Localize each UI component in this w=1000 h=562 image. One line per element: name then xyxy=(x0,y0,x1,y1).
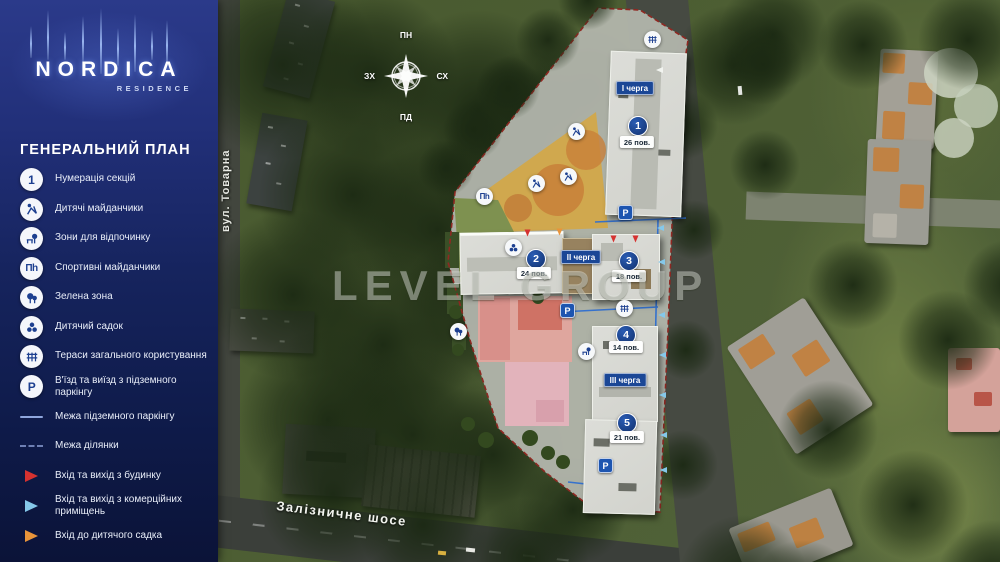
logo-light-streak xyxy=(30,26,32,58)
map-green-zone-icon xyxy=(450,323,467,340)
parking-icon: P xyxy=(20,375,43,398)
legend-label: Зелена зона xyxy=(55,291,113,303)
entrance-arrow-red xyxy=(525,229,531,236)
play-zone-orange xyxy=(504,194,532,222)
legend-label: Вхід до дитячого садка xyxy=(55,530,162,542)
brand-name: NORDICA xyxy=(0,58,218,82)
logo-light-streak xyxy=(47,10,49,60)
legend-item: Вхід до дитячого садка xyxy=(20,525,208,548)
legend-item: Зони для відпочинку xyxy=(20,227,208,250)
legend-label: Дитячі майданчики xyxy=(55,203,143,215)
entrance-arrow-red-icon xyxy=(20,464,43,487)
entrance-arrow-red xyxy=(633,235,639,242)
logo-light-streak xyxy=(64,32,66,60)
parking-entrance-marker: P xyxy=(618,205,633,220)
street-label-tovarna: вул. Товарна xyxy=(220,112,240,232)
green-zone-icon xyxy=(20,286,43,309)
legend-item: Вхід та вихід з будинку xyxy=(20,464,208,487)
legend-label: Вхід та вихід з будинку xyxy=(55,470,161,482)
entrance-arrow-white xyxy=(656,67,663,73)
site-boundary-line-icon xyxy=(20,435,43,458)
section-1-building xyxy=(605,51,687,218)
legend-item: 1Нумерація секцій xyxy=(20,168,208,191)
legend-label: Нумерація секцій xyxy=(55,173,135,185)
legend-label: Дитячий садок xyxy=(55,321,123,333)
map-sports-ground-icon: Пh xyxy=(476,188,493,205)
legend-label: Тераси загального користування xyxy=(55,350,207,362)
brand-logo: NORDICA RESIDENCE xyxy=(0,24,218,108)
section-5-floors: 21 пов. xyxy=(610,431,644,443)
entrance-arrow-blue xyxy=(659,392,666,398)
entrance-arrow-orange xyxy=(557,228,563,235)
compass-star xyxy=(380,50,432,102)
compass-north: ПН xyxy=(400,30,412,40)
legend-item: Межа підземного паркінгу xyxy=(20,405,208,428)
legend-sidebar: NORDICA RESIDENCE ГЕНЕРАЛЬНИЙ ПЛАН 1Нуме… xyxy=(0,0,218,562)
compass-west: ЗХ xyxy=(364,71,375,81)
map-playground-icon xyxy=(528,175,545,192)
compass-rose: ПН СХ ПД ЗХ xyxy=(368,30,444,122)
page-title: ГЕНЕРАЛЬНИЙ ПЛАН xyxy=(20,142,218,158)
logo-light-streak xyxy=(151,30,153,60)
watermark: LEVEL GROUP xyxy=(332,262,709,310)
entrance-arrow-blue xyxy=(658,312,665,318)
entrance-arrow-red xyxy=(611,235,617,242)
legend-label: Зони для відпочинку xyxy=(55,232,150,244)
legend-item: Зелена зона xyxy=(20,286,208,309)
legend-item: Дитячі майданчики xyxy=(20,198,208,221)
section-1-floors: 26 пов. xyxy=(620,136,654,148)
section-1-number: 1 xyxy=(628,116,648,136)
play-zone-light-pink xyxy=(536,400,564,422)
entrance-arrow-blue xyxy=(659,352,666,358)
legend-item: Дитячий садок xyxy=(20,316,208,339)
section-5-number: 5 xyxy=(617,413,637,433)
sports-ground-icon: Пh xyxy=(20,257,43,280)
master-plan-map: вул. Товарна Залізничне шосе ПН СХ ПД ЗХ… xyxy=(218,0,1000,562)
legend-item: Вхід та вихід з комерційних приміщень xyxy=(20,494,208,518)
entrance-arrow-blue xyxy=(660,467,667,473)
map-terrace-icon xyxy=(644,31,661,48)
legend-item: Межа ділянки xyxy=(20,435,208,458)
legend-label: Вхід та вихід з комерційних приміщень xyxy=(55,494,208,518)
legend-item: ПhСпортивні майданчики xyxy=(20,257,208,280)
entrance-arrow-blue xyxy=(657,225,664,231)
kindergarten-icon xyxy=(20,316,43,339)
playground-icon xyxy=(20,198,43,221)
brand-subtitle: RESIDENCE xyxy=(117,84,192,93)
compass-south: ПД xyxy=(400,112,412,122)
legend-label: Межа підземного паркінгу xyxy=(55,411,174,423)
logo-light-streak xyxy=(82,16,84,62)
legend-label: В'їзд та виїзд з підземного паркінгу xyxy=(55,375,208,399)
section-4-floors: 14 пов. xyxy=(609,341,643,353)
parking-boundary-line-icon xyxy=(20,405,43,428)
map-playground-icon xyxy=(560,168,577,185)
entrance-arrow-blue-icon xyxy=(20,495,43,518)
legend-label: Спортивні майданчики xyxy=(55,262,160,274)
legend-item: Тераси загального користування xyxy=(20,345,208,368)
map-rest-zone-icon xyxy=(578,343,595,360)
site-plan-page: { "brand": { "name": "NORDICA", "subtitl… xyxy=(0,0,1000,562)
phase-3-badge: ІІІ черга xyxy=(604,373,647,387)
terrace-icon xyxy=(20,345,43,368)
entrance-arrow-blue xyxy=(660,432,667,438)
compass-east: СХ xyxy=(437,71,448,81)
legend-label: Межа ділянки xyxy=(55,440,119,452)
parking-entrance-marker: P xyxy=(598,458,613,473)
tree-canopy xyxy=(418,140,474,196)
legend-item: PВ'їзд та виїзд з підземного паркінгу xyxy=(20,375,208,399)
legend-list: 1Нумерація секційДитячі майданчикиЗони д… xyxy=(0,168,218,548)
map-kindergarten-icon xyxy=(505,239,522,256)
phase-1-badge: І черга xyxy=(616,81,654,95)
entrance-arrow-orange-icon xyxy=(20,525,43,548)
map-playground-icon xyxy=(568,123,585,140)
rest-zone-icon xyxy=(20,227,43,250)
section-number-icon: 1 xyxy=(20,168,43,191)
